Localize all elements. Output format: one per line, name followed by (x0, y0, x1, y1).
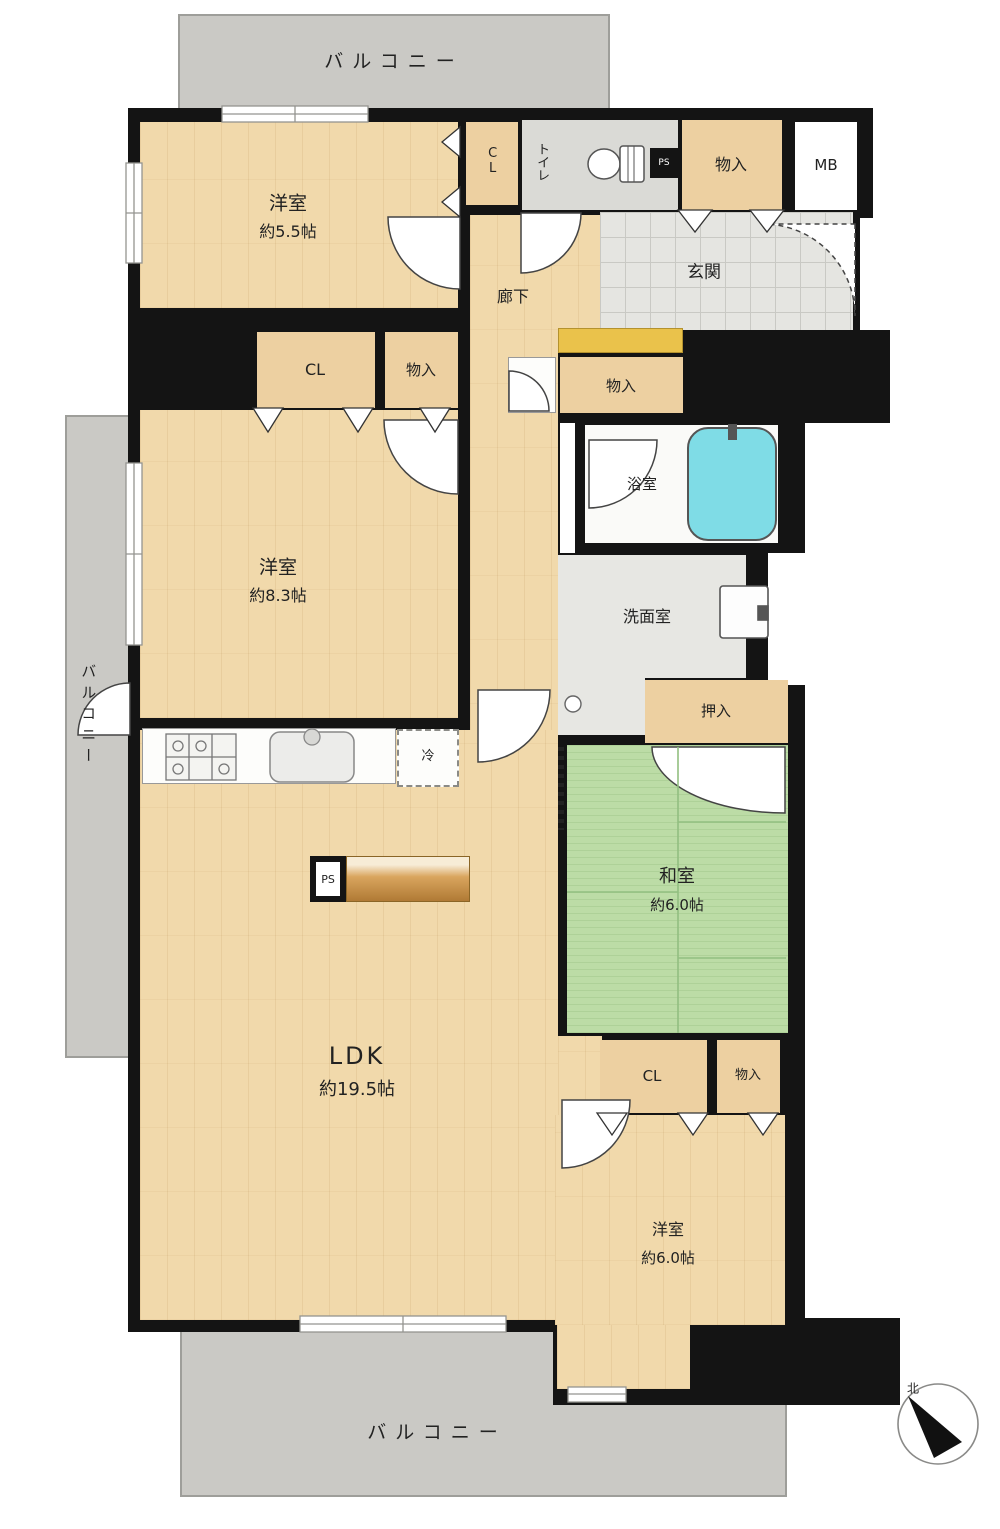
room-japanese-size: 約6.0帖 (650, 897, 704, 914)
closet-cl-west60-label: CL (643, 1068, 662, 1085)
balcony-bottom-label: バルコニー (367, 1423, 507, 1444)
bathtub-icon (688, 424, 776, 540)
door-arc-entrance (763, 224, 855, 316)
closet-cl-west83-label: CL (305, 361, 325, 379)
compass-icon (898, 1384, 978, 1464)
door-arc-western55 (388, 217, 460, 289)
storage-hall-label: 物入 (606, 378, 636, 395)
overlay (0, 0, 1000, 1529)
bath-faucet-icon (728, 424, 737, 440)
ldk-size: 約19.5帖 (319, 1080, 395, 1100)
washing-machine-icon (720, 586, 768, 638)
room-western-5-5-label: 洋室 (269, 194, 307, 215)
storage-west60-label: 物入 (735, 1069, 761, 1083)
balcony-top-label: バルコニー (324, 52, 464, 73)
entrance-label: 玄関 (687, 264, 721, 283)
bathroom-label: 浴室 (627, 476, 657, 493)
room-western-6-0-size: 約6.0帖 (641, 1250, 695, 1267)
room-japanese-label: 和室 (659, 867, 695, 887)
oshiire-label: 押入 (701, 703, 731, 720)
stove-icon (166, 734, 236, 780)
room-western-8-3-size: 約8.3帖 (249, 587, 306, 605)
drain-pan-icon (565, 696, 581, 712)
closet-cl-small-label: CL (485, 146, 499, 176)
door-arc-western60 (562, 1100, 630, 1168)
storage-top-label: 物入 (715, 156, 747, 174)
toilet-icon (588, 146, 644, 182)
storage-west83-label: 物入 (406, 362, 436, 379)
room-western-6-0-label: 洋室 (652, 1221, 684, 1239)
meter-box-label: MB (814, 157, 837, 174)
hallway-label: 廊下 (497, 288, 529, 306)
doors (78, 213, 855, 1168)
ldk-label: LDK (329, 1043, 386, 1069)
room-western-8-3-label: 洋室 (259, 558, 297, 579)
sink-icon (270, 729, 354, 782)
door-arc-japanese-room (652, 747, 785, 813)
washroom-label: 洗面室 (623, 608, 671, 626)
door-arc-toilet (521, 213, 581, 273)
toilet-label: トイレ (534, 143, 548, 182)
balcony-left-label: バルコニー (80, 664, 97, 769)
door-arc-western83 (384, 420, 458, 494)
door-arc-storage-hall (509, 371, 549, 411)
room-western-5-5-size: 約5.5帖 (259, 223, 316, 241)
floor-plan: PS PS (0, 0, 1000, 1529)
door-arc-hall-ldk (478, 690, 550, 762)
compass-north-label: 北 (907, 1382, 919, 1395)
refrigerator-label: 冷 (421, 750, 434, 764)
